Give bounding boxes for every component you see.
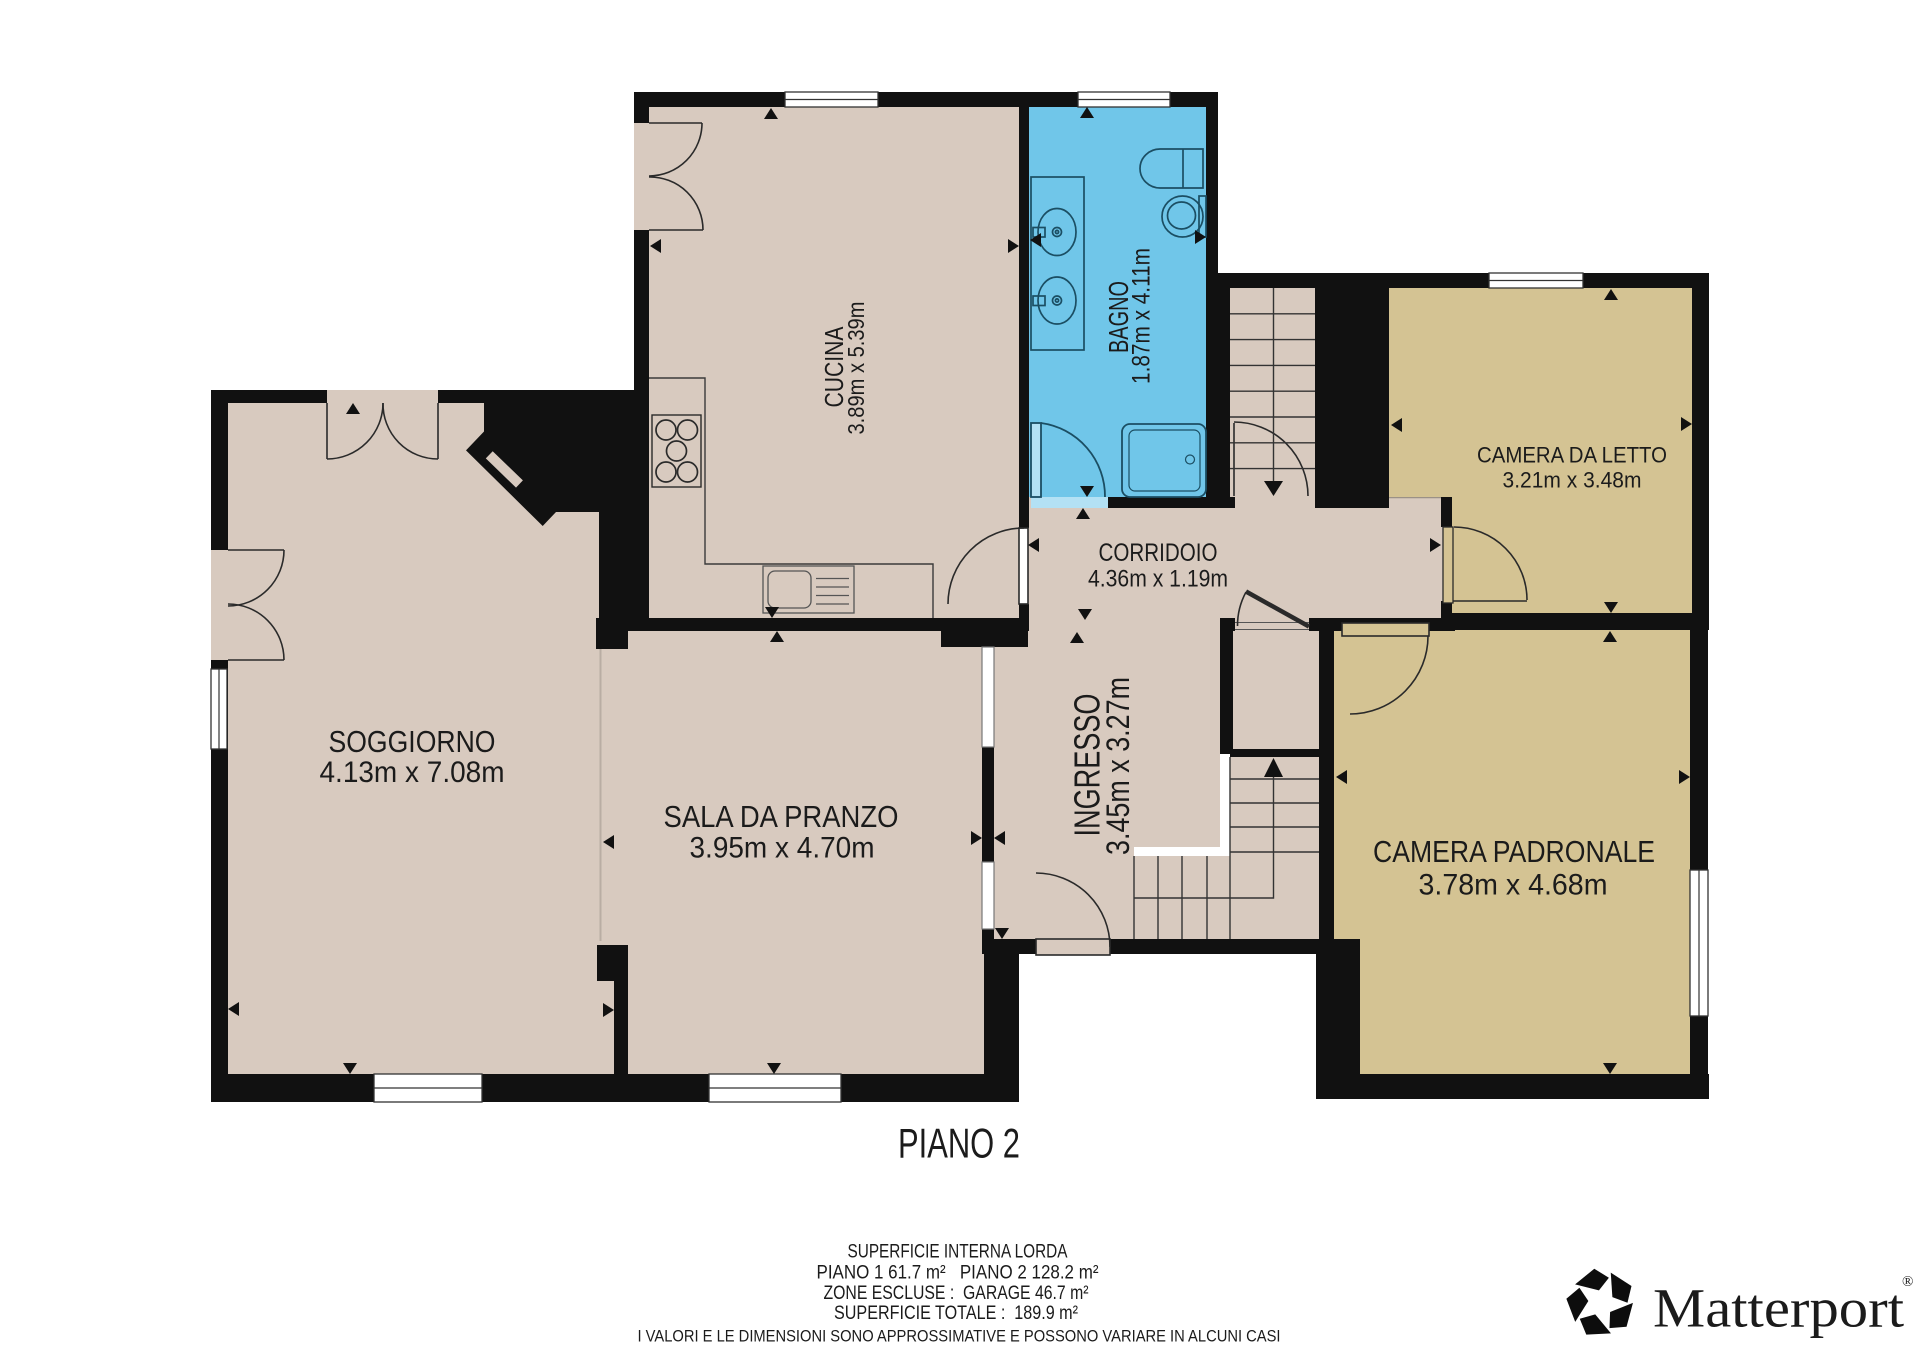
svg-text:PIANO 1 61.7 m² PIANO 2 128.: PIANO 1 61.7 m² PIANO 2 128.2 m² bbox=[817, 1263, 1099, 1284]
svg-text:4.13m x 7.08m: 4.13m x 7.08m bbox=[320, 756, 505, 789]
svg-text:3.95m x 4.70m: 3.95m x 4.70m bbox=[690, 832, 875, 865]
svg-text:CAMERA PADRONALE: CAMERA PADRONALE bbox=[1373, 834, 1655, 869]
svg-text:3.78m x 4.68m: 3.78m x 4.68m bbox=[1419, 869, 1608, 902]
svg-text:CORRIDOIO: CORRIDOIO bbox=[1099, 539, 1218, 567]
svg-text:SUPERFICIE INTERNA LORDA: SUPERFICIE INTERNA LORDA bbox=[848, 1242, 1068, 1263]
svg-text:3.21m x 3.48m: 3.21m x 3.48m bbox=[1503, 468, 1642, 493]
svg-text:SOGGIORNO: SOGGIORNO bbox=[329, 724, 496, 759]
svg-text:3.45m x 3.27m: 3.45m x 3.27m bbox=[1100, 677, 1136, 855]
svg-text:4.36m x 1.19m: 4.36m x 1.19m bbox=[1088, 565, 1228, 592]
svg-text:1.87m x 4.11m: 1.87m x 4.11m bbox=[1128, 248, 1156, 384]
svg-text:PIANO 2: PIANO 2 bbox=[898, 1120, 1020, 1167]
svg-text:ZONE ESCLUSE : GARAGE 46.7 m²: ZONE ESCLUSE : GARAGE 46.7 m² bbox=[824, 1283, 1089, 1304]
svg-text:SUPERFICIE TOTALE : 189.9 m²: SUPERFICIE TOTALE : 189.9 m² bbox=[834, 1303, 1078, 1324]
svg-text:®: ® bbox=[1902, 1274, 1913, 1290]
svg-text:SALA DA PRANZO: SALA DA PRANZO bbox=[664, 799, 899, 834]
svg-text:CAMERA DA LETTO: CAMERA DA LETTO bbox=[1477, 443, 1667, 468]
svg-text:3.89m x 5.39m: 3.89m x 5.39m bbox=[843, 302, 869, 435]
svg-text:Matterport: Matterport bbox=[1653, 1278, 1904, 1339]
svg-text:I VALORI E LE DIMENSIONI SONO: I VALORI E LE DIMENSIONI SONO APPROSSIMA… bbox=[638, 1326, 1281, 1345]
